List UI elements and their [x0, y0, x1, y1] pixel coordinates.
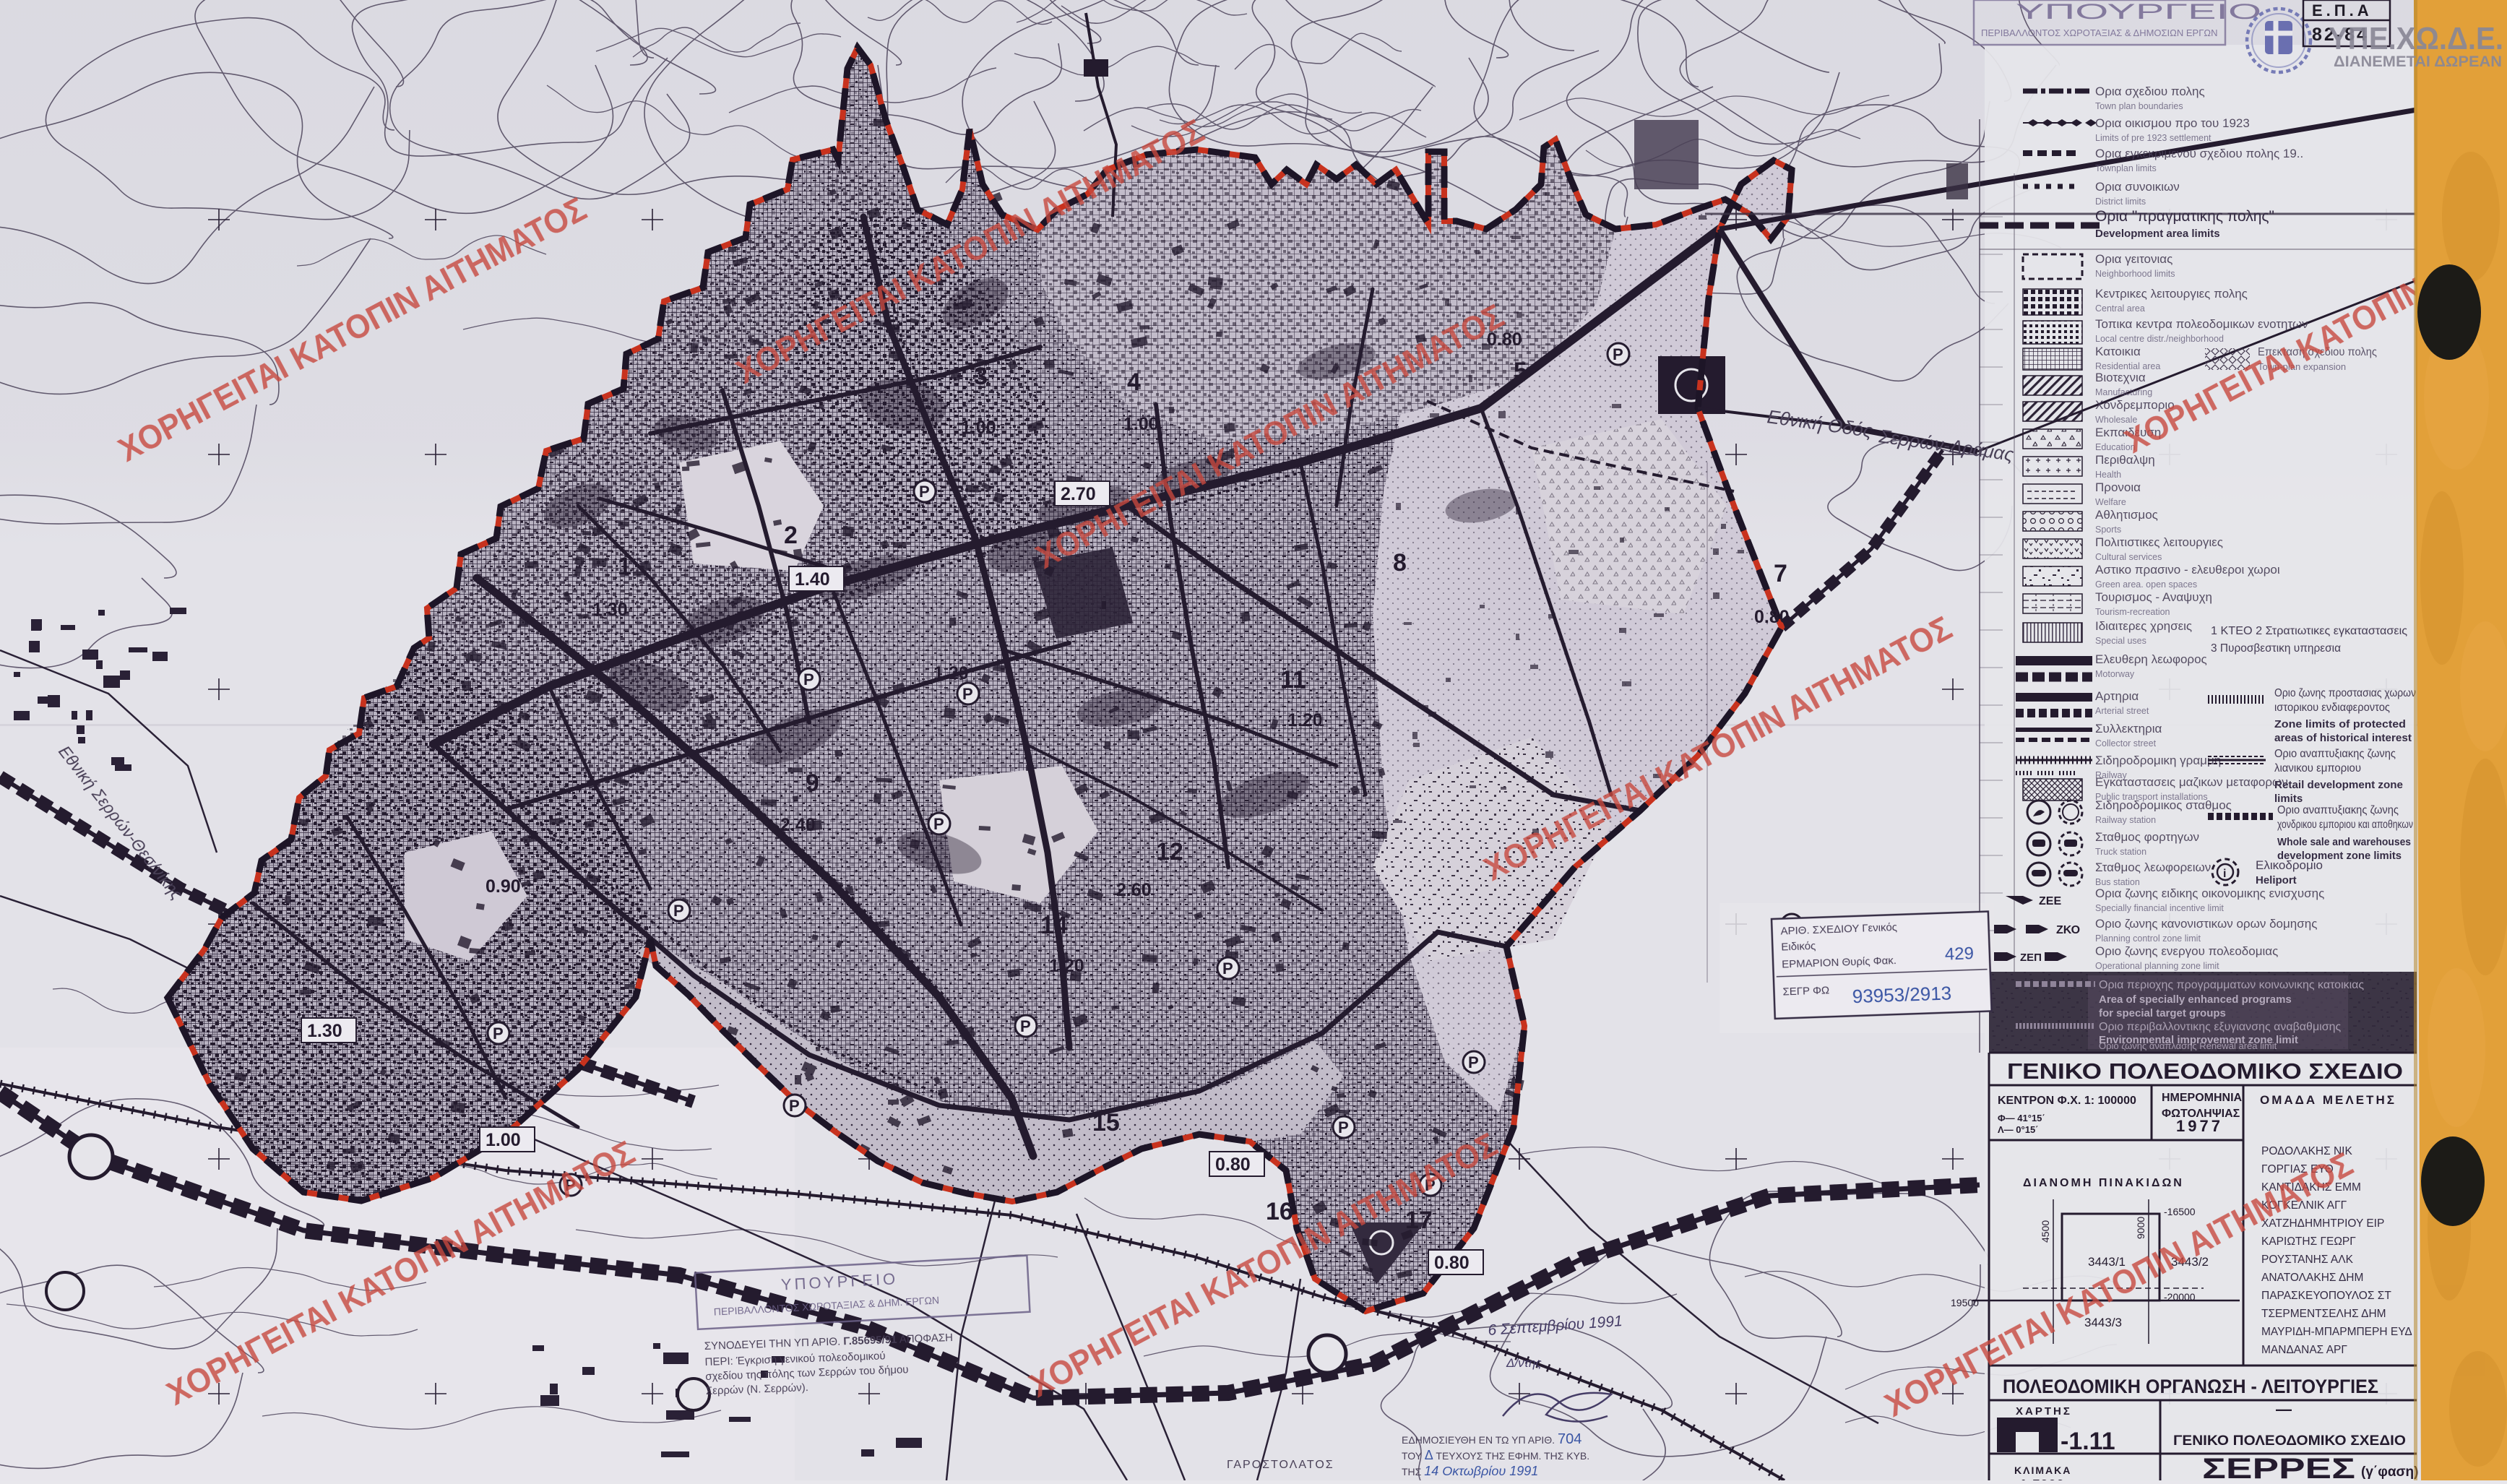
- svg-text:Special uses: Special uses: [2095, 636, 2146, 646]
- svg-text:1.00: 1.00: [486, 1130, 521, 1150]
- svg-text:ΣΕΡΡΕΣ: ΣΕΡΡΕΣ: [2202, 1453, 2355, 1480]
- svg-text:1 ΚΤΕΟ 2 Στρατιωτικες εγκατ: 1 ΚΤΕΟ 2 Στρατιωτικες εγκαταστασεις: [2211, 625, 2407, 637]
- svg-text:4500: 4500: [2040, 1220, 2051, 1243]
- svg-text:Manufacturing: Manufacturing: [2095, 387, 2152, 397]
- svg-text:0.80: 0.80: [1434, 1253, 1470, 1273]
- svg-text:1.00: 1.00: [961, 418, 996, 438]
- svg-text:ΥΠΕ.ΧΩ.Δ.Ε.: ΥΠΕ.ΧΩ.Δ.Ε.: [2329, 21, 2503, 56]
- svg-text:Area of specially enhanced pro: Area of specially enhanced programs: [2099, 993, 2292, 1006]
- svg-text:ΓΕΝΙΚΟ ΠΟΛΕΟΔΟΜΙΚΟ ΣΧΕΔΙΟ: ΓΕΝΙΚΟ ΠΟΛΕΟΔΟΜΙΚΟ ΣΧΕΔΙΟ: [2007, 1058, 2403, 1084]
- svg-text:P: P: [1468, 1053, 1479, 1071]
- svg-text:Arterial street: Arterial street: [2095, 706, 2149, 716]
- svg-text:Πολιτιστικες λειτουργιες: Πολιτιστικες λειτουργιες: [2095, 535, 2223, 549]
- svg-text:Οριο ζωνης ενεργου πολεοδομ: Οριο ζωνης ενεργου πολεοδομιας: [2095, 944, 2278, 958]
- svg-text:Residential area: Residential area: [2095, 361, 2160, 371]
- svg-text:Ελευθερη λεωφορος: Ελευθερη λεωφορος: [2095, 652, 2207, 666]
- svg-text:0.80: 0.80: [1754, 607, 1790, 627]
- svg-text:ΓΕΝΙΚΟ ΠΟΛΕΟΔΟΜΙΚΟ ΣΧΕΔΙΟ: ΓΕΝΙΚΟ ΠΟΛΕΟΔΟΜΙΚΟ ΣΧΕΔΙΟ: [2173, 1433, 2406, 1449]
- svg-text:P: P: [933, 815, 944, 833]
- svg-text:1.20: 1.20: [1049, 956, 1084, 976]
- svg-text:Οριο αναπτυξιακης ζωνης: Οριο αναπτυξιακης ζωνης: [2274, 748, 2396, 760]
- svg-text:12: 12: [1156, 838, 1183, 866]
- svg-text:Tourism-recreation: Tourism-recreation: [2095, 607, 2170, 617]
- svg-text:-1.11: -1.11: [2061, 1428, 2115, 1455]
- svg-text:ΗΜΕΡΟΜΗΝΙΑ: ΗΜΕΡΟΜΗΝΙΑ: [2162, 1092, 2243, 1104]
- svg-text:-20000: -20000: [2164, 1291, 2196, 1303]
- svg-text:ΡΟΥΣΤΑΝΗΣ ΑΛΚ: ΡΟΥΣΤΑΝΗΣ ΑΛΚ: [2261, 1254, 2354, 1266]
- svg-text:Ορια περιοχης προγραμματων κοι: Ορια περιοχης προγραμματων κοινωνικης κα…: [2099, 979, 2364, 991]
- svg-text:ΚΛΙΜΑΚΑ: ΚΛΙΜΑΚΑ: [2014, 1464, 2071, 1476]
- svg-text:Οριο περιβαλλοντικης εξυγιανση: Οριο περιβαλλοντικης εξυγιανσης αναβαθμι…: [2099, 1021, 2341, 1033]
- svg-text:ΟΜΑΔΑ ΜΕΛΕΤΗΣ: ΟΜΑΔΑ ΜΕΛΕΤΗΣ: [2260, 1093, 2396, 1107]
- svg-text:ΖΕΠ: ΖΕΠ: [2020, 952, 2042, 964]
- svg-text:Townplan limits: Townplan limits: [2095, 163, 2157, 173]
- svg-text:P: P: [493, 1024, 504, 1043]
- svg-text:93953/2913: 93953/2913: [1852, 982, 1951, 1007]
- svg-text:ΤΟΥ Δ ΤΕΥΧΟΥΣ ΤΗΣ ΕΦΗΜ. ΤΗΣ ΚΥ: ΤΟΥ Δ ΤΕΥΧΟΥΣ ΤΗΣ ΕΦΗΜ. ΤΗΣ ΚΥΒ.: [1402, 1448, 1589, 1462]
- svg-text:P: P: [803, 670, 814, 689]
- svg-text:16: 16: [1266, 1198, 1293, 1225]
- svg-text:Προνοια: Προνοια: [2095, 480, 2141, 494]
- svg-text:1.30: 1.30: [592, 600, 628, 620]
- svg-text:2: 2: [784, 522, 798, 549]
- svg-text:1.40: 1.40: [795, 569, 830, 590]
- svg-text:P: P: [1613, 345, 1623, 363]
- svg-text:Railway station: Railway station: [2095, 815, 2156, 825]
- svg-text:Ορια οικισμου προ του 1923: Ορια οικισμου προ του 1923: [2095, 116, 2250, 130]
- svg-text:Cultural services: Cultural services: [2095, 552, 2162, 562]
- svg-text:Specially financial incentiv: Specially financial incentive limit: [2095, 903, 2224, 913]
- svg-text:Ορια εγκεκριμενου σχεδιου π: Ορια εγκεκριμενου σχεδιου πολης 19..: [2095, 147, 2303, 160]
- svg-text:Ορια συνοικιων: Ορια συνοικιων: [2095, 180, 2180, 194]
- svg-text:17: 17: [1405, 1207, 1433, 1234]
- svg-text:ΑΝΑΤΟΛΑΚΗΣ ΔΗΜ: ΑΝΑΤΟΛΑΚΗΣ ΔΗΜ: [2261, 1272, 2363, 1284]
- svg-text:P: P: [1020, 1017, 1031, 1035]
- svg-text:ιστορικου ενδιαφεροντος: ιστορικου ενδιαφεροντος: [2274, 702, 2390, 714]
- svg-text:Περιθαλψη: Περιθαλψη: [2095, 453, 2155, 467]
- svg-text:ΣΕΓΡ ΦΩ: ΣΕΓΡ ΦΩ: [1782, 984, 1829, 998]
- svg-text:ΠΑΡΑΣΚΕΥΟΠΟΥΛΟΣ ΣΤ: ΠΑΡΑΣΚΕΥΟΠΟΥΛΟΣ ΣΤ: [2261, 1290, 2391, 1302]
- svg-text:Collector street: Collector street: [2095, 738, 2157, 749]
- svg-text:1.20: 1.20: [933, 663, 969, 683]
- svg-text:ΥΠΟΥΡΓΕΙΟ: ΥΠΟΥΡΓΕΙΟ: [2016, 0, 2261, 24]
- svg-text:Town plan boundaries: Town plan boundaries: [2095, 101, 2183, 111]
- svg-text:Ιδιαιτερες χρησεις: Ιδιαιτερες χρησεις: [2095, 619, 2192, 633]
- svg-text:4: 4: [1127, 368, 1141, 396]
- svg-text:ΤΗΣ 14 Οκτωβρίου 1991: ΤΗΣ 14 Οκτωβρίου 1991: [1402, 1464, 1538, 1478]
- svg-text:1.30: 1.30: [307, 1021, 342, 1041]
- svg-text:Bus station: Bus station: [2095, 877, 2140, 887]
- svg-text:Ελικοδρομιο: Ελικοδρομιο: [2256, 858, 2323, 872]
- svg-text:-16500: -16500: [2164, 1206, 2196, 1217]
- svg-text:2.60: 2.60: [1116, 880, 1152, 900]
- svg-text:1: 1: [618, 553, 631, 580]
- svg-text:P: P: [962, 685, 973, 703]
- svg-text:Τοπικα κεντρα πολεοδομικων: Τοπικα κεντρα πολεοδομικων ενοτητων: [2095, 317, 2308, 331]
- svg-text:9000: 9000: [2135, 1217, 2146, 1239]
- svg-text:Δ/ντης: Δ/ντης: [1506, 1356, 1542, 1370]
- svg-text:11: 11: [1280, 666, 1306, 694]
- svg-text:Limits of pre 1923 settlement: Limits of pre 1923 settlement: [2095, 133, 2212, 143]
- svg-text:14: 14: [1040, 912, 1068, 939]
- svg-text:P: P: [789, 1097, 800, 1115]
- svg-text:χονδρικου εμποριου και αποθηκω: χονδρικου εμποριου και αποθηκων: [2277, 819, 2413, 831]
- svg-text:Σταθμος φορτηγων: Σταθμος φορτηγων: [2095, 830, 2199, 844]
- svg-text:Neighborhood limits: Neighborhood limits: [2095, 269, 2175, 279]
- svg-text:ΜΑΥΡΙΔΗ-ΜΠΑΡΜΠΕΡΗ ΕΥΔ: ΜΑΥΡΙΔΗ-ΜΠΑΡΜΠΕΡΗ ΕΥΔ: [2261, 1326, 2412, 1338]
- svg-text:ΖΚΟ: ΖΚΟ: [2056, 924, 2080, 936]
- svg-text:ΠΟΛΕΟΔΟΜΙΚΗ ΟΡΓΑΝΩΣΗ - ΛΕΙΤΟΥ: ΠΟΛΕΟΔΟΜΙΚΗ ΟΡΓΑΝΩΣΗ - ΛΕΙΤΟΥΡΓΙΕΣ: [2003, 1376, 2378, 1397]
- svg-text:ΔΙΑΝΕΜΕΤΑΙ ΔΩΡΕΑΝ: ΔΙΑΝΕΜΕΤΑΙ ΔΩΡΕΑΝ: [2334, 53, 2502, 70]
- svg-text:3: 3: [974, 363, 988, 390]
- svg-text:5: 5: [1514, 358, 1527, 385]
- svg-text:Οριο αναπτυξιακης ζωνης: Οριο αναπτυξιακης ζωνης: [2277, 804, 2399, 816]
- svg-text:λιανικου εμποριου: λιανικου εμποριου: [2274, 762, 2361, 775]
- svg-text:7: 7: [1774, 560, 1787, 587]
- svg-text:District limits: District limits: [2095, 197, 2146, 207]
- svg-text:Ορια ζωνης ειδικης οικονομι: Ορια ζωνης ειδικης οικονομικης ενισχυσης: [2095, 886, 2324, 900]
- svg-text:P: P: [919, 483, 930, 501]
- svg-text:ΕΔΗΜΟΣΙΕΥΘΗ ΕΝ ΤΩ ΥΠ ΑΡΙΘ. 704: ΕΔΗΜΟΣΙΕΥΘΗ ΕΝ ΤΩ ΥΠ ΑΡΙΘ. 704: [1402, 1431, 1582, 1447]
- svg-text:Αθλητισμος: Αθλητισμος: [2095, 508, 2158, 522]
- svg-text:Εγκαταστασεις μαζικων μεταφο: Εγκαταστασεις μαζικων μεταφορων: [2095, 775, 2288, 789]
- svg-text:Ορια "πραγματικης πολης": Ορια "πραγματικης πολης": [2095, 208, 2274, 225]
- svg-text:Οριο ζωνης αναπλασης Renewal: Οριο ζωνης αναπλασης Renewal area limit: [2099, 1040, 2277, 1051]
- svg-text:Σιδηροδρομικος σταθμος: Σιδηροδρομικος σταθμος: [2095, 798, 2232, 812]
- svg-text:1.20: 1.20: [1287, 710, 1323, 730]
- svg-text:Λ— 0°15΄: Λ— 0°15΄: [1998, 1124, 2039, 1135]
- svg-text:Συλλεκτηρια: Συλλεκτηρια: [2095, 722, 2162, 735]
- svg-text:Κεντρικες λειτουργιες πολης: Κεντρικες λειτουργιες πολης: [2095, 287, 2248, 301]
- svg-text:i: i: [2223, 868, 2226, 880]
- svg-text:Ε.Π.Α: Ε.Π.Α: [2312, 1, 2373, 20]
- svg-text:ΠΕΡΙΒΑΛΛΟΝΤΟΣ ΧΩΡΟΤΑΞΙΑΣ &: ΠΕΡΙΒΑΛΛΟΝΤΟΣ ΧΩΡΟΤΑΞΙΑΣ & ΔΗΜΟΣΙΩΝ ΕΡΓΩ…: [1981, 27, 2218, 38]
- svg-text:ΜΑΝΔΑΝΑΣ ΑΡΓ: ΜΑΝΔΑΝΑΣ ΑΡΓ: [2261, 1344, 2347, 1356]
- svg-text:Ορια σχεδιου πολης: Ορια σχεδιου πολης: [2095, 85, 2205, 98]
- svg-text:for special target groups: for special target groups: [2099, 1007, 2226, 1019]
- svg-text:3 Πυροσβεστικη υπηρεσια: 3 Πυροσβεστικη υπηρεσια: [2211, 642, 2341, 655]
- svg-text:Κατοικια: Κατοικια: [2095, 345, 2141, 358]
- svg-text:0.90: 0.90: [486, 876, 521, 897]
- svg-text:ΖΕΕ: ΖΕΕ: [2039, 895, 2061, 907]
- svg-text:limits: limits: [2274, 793, 2303, 805]
- svg-text:Zone limits of protected: Zone limits of protected: [2274, 718, 2406, 730]
- svg-text:ΧΑΡΤΗΣ: ΧΑΡΤΗΣ: [2016, 1405, 2072, 1418]
- svg-text:1.00: 1.00: [1123, 414, 1159, 434]
- svg-text:ΚΕΝΤΡΟΝ Φ.Χ. 1: 100000: ΚΕΝΤΡΟΝ Φ.Χ. 1: 100000: [1998, 1095, 2136, 1107]
- svg-text:(γ΄φαση): (γ΄φαση): [2361, 1464, 2418, 1480]
- svg-text:1:5000: 1:5000: [2019, 1477, 2064, 1480]
- svg-text:P: P: [1222, 959, 1233, 978]
- svg-text:Heliport: Heliport: [2256, 874, 2297, 886]
- svg-text:Planning control zone limit: Planning control zone limit: [2095, 933, 2201, 944]
- svg-text:Welfare: Welfare: [2095, 497, 2126, 507]
- svg-text:15: 15: [1092, 1109, 1120, 1136]
- svg-text:2.40: 2.40: [780, 815, 816, 835]
- svg-text:Βιοτεχνια: Βιοτεχνια: [2095, 371, 2146, 384]
- svg-text:Green area. open spaces: Green area. open spaces: [2095, 579, 2197, 590]
- svg-text:Motorway: Motorway: [2095, 669, 2135, 679]
- svg-text:Truck station: Truck station: [2095, 847, 2146, 857]
- svg-text:P: P: [673, 902, 684, 920]
- svg-text:0.80: 0.80: [1215, 1155, 1251, 1175]
- svg-text:Αρτηρια: Αρτηρια: [2095, 689, 2139, 703]
- svg-text:P: P: [1338, 1118, 1349, 1136]
- svg-text:ΚΑΡΙΩΤΗΣ ΓΕΩΡΓ: ΚΑΡΙΩΤΗΣ ΓΕΩΡΓ: [2261, 1235, 2356, 1248]
- svg-text:Sports: Sports: [2095, 525, 2121, 535]
- svg-text:Health: Health: [2095, 470, 2121, 480]
- svg-text:Ορια γειτονιας: Ορια γειτονιας: [2095, 252, 2172, 266]
- svg-text:ΤΣΕΡΜΕΝΤΣΕΛΗΣ ΔΗΜ: ΤΣΕΡΜΕΝΤΣΕΛΗΣ ΔΗΜ: [2261, 1308, 2386, 1320]
- svg-text:Αστικο πρασινο - ελευθεροι χ: Αστικο πρασινο - ελευθεροι χωροι: [2095, 563, 2280, 577]
- svg-text:9: 9: [806, 769, 819, 797]
- svg-text:1977: 1977: [2176, 1117, 2223, 1135]
- svg-text:8: 8: [1393, 549, 1407, 577]
- svg-text:ΔΙΑΝΟΜΗ ΠΙΝΑΚΙΔΩΝ: ΔΙΑΝΟΜΗ ΠΙΝΑΚΙΔΩΝ: [2023, 1177, 2184, 1189]
- svg-text:Development area limits: Development area limits: [2095, 228, 2220, 240]
- svg-text:Operational planning zone l: Operational planning zone limit: [2095, 961, 2219, 971]
- svg-text:2.70: 2.70: [1061, 484, 1096, 504]
- svg-text:—: —: [2276, 1400, 2292, 1418]
- svg-text:Οριο ζωνης κανονιστικων ορω: Οριο ζωνης κανονιστικων ορων δομησης: [2095, 917, 2317, 931]
- svg-text:Central area: Central area: [2095, 303, 2145, 314]
- svg-text:Σιδηροδρομικη γραμμη: Σιδηροδρομικη γραμμη: [2095, 754, 2221, 767]
- svg-text:Local centre distr./neighborho: Local centre distr./neighborhood: [2095, 334, 2224, 344]
- svg-text:Whole sale and warehouses: Whole sale and warehouses: [2277, 836, 2411, 848]
- svg-text:Οριο ζωνης προστασιας χωρων: Οριο ζωνης προστασιας χωρων: [2274, 687, 2416, 699]
- svg-text:Τουρισμος - Αναψυχη: Τουρισμος - Αναψυχη: [2095, 590, 2212, 604]
- svg-text:Retail development zone: Retail development zone: [2274, 779, 2403, 791]
- svg-text:Σταθμος λεωφορειων: Σταθμος λεωφορειων: [2095, 860, 2211, 874]
- svg-text:429: 429: [1944, 944, 1974, 964]
- svg-text:Φ— 41°15΄: Φ— 41°15΄: [1998, 1113, 2045, 1123]
- svg-text:Ειδικός: Ειδικός: [1781, 940, 1816, 954]
- svg-text:ΓΑΡΟΣΤΟΛΑΤΟΣ: ΓΑΡΟΣΤΟΛΑΤΟΣ: [1227, 1459, 1334, 1471]
- svg-text:areas of historical interest: areas of historical interest: [2274, 732, 2412, 744]
- svg-text:19500: 19500: [1951, 1297, 1979, 1308]
